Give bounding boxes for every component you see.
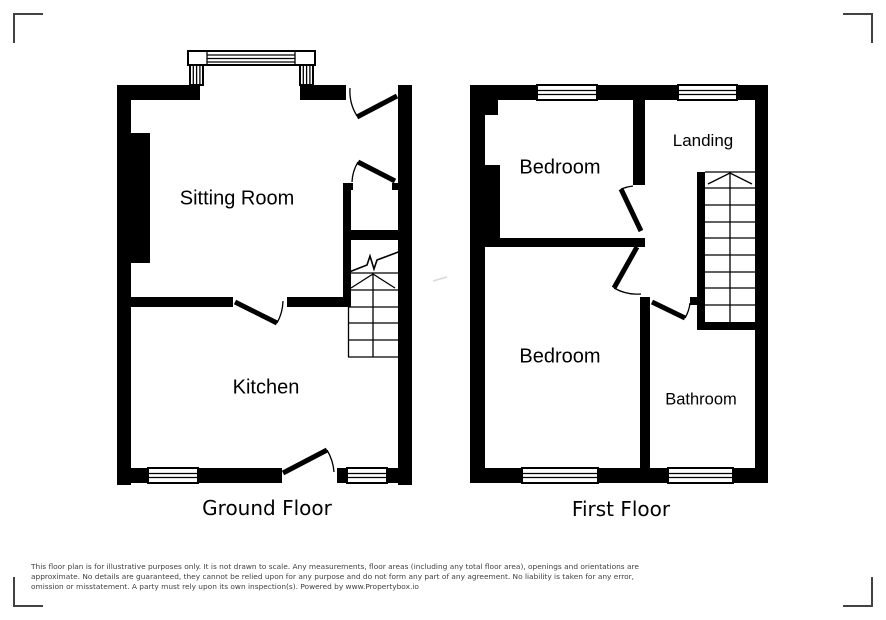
wall-segment — [337, 468, 347, 483]
wall-segment — [387, 468, 412, 483]
window — [537, 85, 597, 100]
wall-segment — [287, 297, 343, 307]
stairs — [344, 251, 401, 357]
wall-segment — [697, 322, 768, 330]
wall-segment — [117, 85, 200, 100]
wall-segment — [300, 85, 346, 100]
door-swing — [235, 301, 283, 323]
wall-segment — [198, 468, 282, 483]
window — [347, 468, 387, 483]
window — [678, 85, 737, 100]
wall-segment — [343, 183, 351, 307]
door-swing — [614, 247, 641, 294]
wall-segment — [485, 100, 498, 115]
wall-segment — [633, 100, 645, 185]
first-floor-title: First Floor — [572, 497, 670, 521]
floorplan-canvas: Sitting Room Kitchen Bedroom Landing Bed… — [0, 0, 886, 620]
window — [522, 468, 598, 483]
door-swing — [621, 186, 641, 231]
faint-mark — [433, 277, 447, 281]
wall-segment — [117, 85, 131, 485]
wall-segment — [470, 85, 537, 100]
wall-segment — [597, 85, 678, 100]
ground-floor-walls — [117, 85, 412, 485]
wall-segment — [398, 85, 412, 485]
ground-floor-plan — [117, 51, 412, 485]
room-label-landing: Landing — [673, 131, 734, 151]
chimney-breast — [131, 133, 150, 263]
wall-segment — [131, 297, 233, 307]
door-swing — [283, 450, 334, 473]
wall-segment — [733, 468, 768, 483]
disclaimer-line: approximate. No details are guaranteed, … — [31, 572, 639, 582]
room-label-kitchen: Kitchen — [233, 377, 300, 400]
wall-segment — [343, 230, 412, 240]
door-swing — [352, 162, 395, 182]
stairs — [705, 172, 755, 322]
window — [148, 468, 198, 483]
room-label-bathroom: Bathroom — [665, 391, 737, 410]
disclaimer-text: This floor plan is for illustrative purp… — [31, 562, 639, 592]
wall-segment — [598, 468, 668, 483]
room-label-bedroom-front: Bedroom — [519, 157, 600, 180]
wall-segment — [640, 297, 650, 468]
room-label-sitting-room: Sitting Room — [180, 188, 295, 211]
bay-window — [188, 51, 315, 85]
wall-segment — [470, 85, 485, 483]
wall-segment — [697, 172, 705, 330]
wall-segment — [392, 183, 398, 190]
floorplan-drawing — [0, 0, 886, 620]
wall-segment — [755, 85, 768, 483]
room-label-bedroom-back: Bedroom — [519, 346, 600, 369]
wall-segment — [117, 468, 148, 483]
window — [668, 468, 733, 483]
ground-floor-title: Ground Floor — [202, 496, 332, 520]
wall-segment — [485, 238, 645, 247]
disclaimer-line: omission or misstatement. A party must r… — [31, 582, 639, 592]
disclaimer-line: This floor plan is for illustrative purp… — [31, 562, 639, 572]
chimney-breast — [485, 165, 500, 238]
door-swing — [350, 88, 397, 117]
wall-segment — [690, 297, 698, 305]
door-swing — [652, 302, 690, 318]
wall-segment — [470, 468, 522, 483]
